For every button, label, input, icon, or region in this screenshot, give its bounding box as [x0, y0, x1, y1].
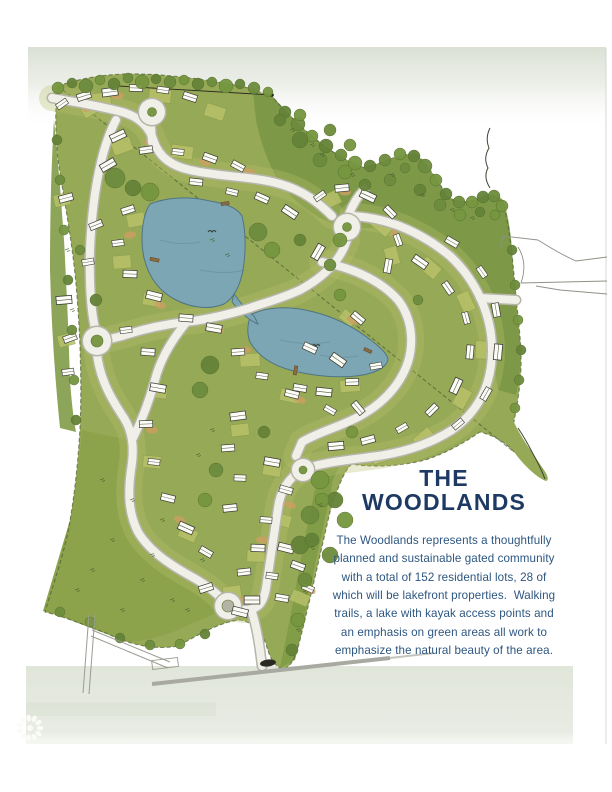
tree-cluster	[298, 573, 312, 587]
house	[234, 475, 246, 482]
tree-cluster	[69, 375, 79, 385]
road	[151, 126, 152, 142]
tree-cluster	[192, 382, 208, 398]
house	[260, 517, 272, 524]
tree-cluster	[141, 183, 159, 201]
house	[237, 568, 251, 576]
house	[251, 544, 265, 552]
house	[223, 504, 238, 513]
tree-cluster	[235, 79, 245, 89]
tree-cluster	[200, 629, 210, 639]
tree-cluster	[346, 426, 358, 438]
house	[148, 458, 160, 465]
tree-cluster	[324, 259, 336, 271]
tree-cluster	[108, 78, 120, 90]
house	[139, 146, 153, 155]
tree-cluster	[453, 196, 465, 208]
tree-cluster	[418, 159, 432, 173]
tree-cluster	[52, 82, 64, 94]
tree-cluster	[79, 79, 93, 93]
house	[266, 572, 279, 580]
house	[345, 378, 359, 385]
tree-cluster	[201, 356, 219, 374]
house	[189, 178, 203, 186]
tree-cluster	[516, 345, 526, 355]
residential-lot	[230, 423, 249, 437]
tree-cluster	[55, 175, 65, 185]
residential-lot	[112, 255, 131, 270]
tree-cluster	[179, 75, 189, 85]
house	[231, 348, 245, 356]
tree-cluster	[125, 180, 141, 196]
house	[335, 184, 350, 192]
tree-cluster	[477, 191, 489, 203]
tree-cluster	[164, 76, 176, 88]
tree-cluster	[338, 165, 352, 179]
house	[56, 295, 72, 304]
tree-cluster	[263, 87, 273, 97]
house	[244, 596, 260, 604]
title-line-2: WOODLANDS	[328, 491, 560, 515]
house	[120, 326, 132, 333]
house	[139, 420, 153, 427]
tree-cluster	[466, 196, 478, 208]
tree-cluster	[209, 463, 223, 477]
tree-cluster	[513, 315, 523, 325]
house	[221, 444, 235, 452]
tree-cluster	[507, 245, 517, 255]
house	[316, 387, 332, 397]
tree-cluster	[249, 223, 267, 241]
tree-cluster	[175, 639, 185, 649]
tree-cluster	[400, 163, 410, 173]
tree-cluster	[207, 77, 217, 87]
house	[112, 239, 125, 247]
tree-cluster	[292, 132, 308, 148]
house	[62, 368, 75, 376]
tree-cluster	[430, 174, 442, 186]
tree-cluster	[95, 75, 105, 85]
tree-cluster	[52, 135, 62, 145]
title-line-1: THE	[328, 467, 560, 491]
tree-cluster	[496, 200, 508, 212]
site-plan-map	[0, 0, 612, 792]
community-description: The Woodlands represents a thoughtfully …	[328, 532, 560, 661]
tree-cluster	[59, 225, 69, 235]
tree-cluster	[301, 506, 319, 524]
tree-cluster	[315, 493, 329, 507]
house	[328, 441, 344, 450]
tree-cluster	[394, 148, 406, 160]
tree-cluster	[413, 295, 423, 305]
tree-cluster	[324, 124, 336, 136]
tree-cluster	[248, 82, 260, 94]
tree-cluster	[440, 188, 452, 200]
tree-cluster	[67, 78, 77, 88]
tree-cluster	[85, 617, 95, 627]
tree-cluster	[145, 640, 155, 650]
tree-cluster	[63, 275, 73, 285]
tree-cluster	[274, 114, 286, 126]
tree-cluster	[219, 79, 233, 93]
house	[123, 270, 137, 278]
tree-cluster	[105, 168, 125, 188]
tree-cluster	[294, 109, 306, 121]
tree-cluster	[364, 160, 376, 172]
tree-cluster	[55, 607, 65, 617]
tree-cluster	[488, 190, 500, 202]
tree-cluster	[67, 325, 77, 335]
tree-cluster	[313, 153, 327, 167]
tree-cluster	[291, 613, 305, 627]
tree-cluster	[319, 139, 333, 153]
tree-cluster	[514, 375, 524, 385]
scan-streak	[26, 702, 216, 716]
tree-cluster	[475, 207, 485, 217]
tree-cluster	[305, 533, 319, 547]
tree-cluster	[123, 73, 133, 83]
house	[493, 344, 502, 360]
tree-cluster	[192, 78, 204, 90]
tree-cluster	[408, 150, 420, 162]
tree-cluster	[434, 199, 446, 211]
tree-cluster	[333, 233, 347, 247]
tree-cluster	[71, 415, 81, 425]
tree-cluster	[90, 294, 102, 306]
tree-cluster	[490, 210, 500, 220]
tree-cluster	[135, 75, 149, 89]
community-title: THE WOODLANDS	[328, 467, 560, 515]
tree-cluster	[311, 471, 329, 489]
tree-cluster	[414, 184, 426, 196]
house	[172, 148, 184, 155]
house	[466, 345, 474, 360]
stream-line-northeast	[486, 128, 490, 188]
house	[230, 411, 247, 421]
house	[141, 348, 155, 356]
tree-cluster	[334, 289, 346, 301]
tree-cluster	[286, 644, 298, 656]
tree-cluster	[344, 139, 356, 151]
info-panel: THE WOODLANDS The Woodlands represents a…	[328, 467, 560, 661]
tree-cluster	[510, 280, 520, 290]
tree-cluster	[75, 245, 85, 255]
scanned-page: THE WOODLANDS The Woodlands represents a…	[0, 0, 612, 792]
tree-cluster	[264, 242, 280, 258]
tree-cluster	[335, 149, 347, 161]
tree-cluster	[198, 493, 212, 507]
road	[480, 298, 516, 300]
tree-cluster	[359, 179, 371, 191]
house	[256, 372, 269, 380]
house	[179, 314, 193, 322]
tree-cluster	[151, 74, 161, 84]
tree-cluster	[454, 209, 466, 221]
tree-cluster	[294, 234, 306, 246]
tree-cluster	[510, 403, 520, 413]
tree-cluster	[258, 426, 270, 438]
tree-cluster	[379, 154, 391, 166]
